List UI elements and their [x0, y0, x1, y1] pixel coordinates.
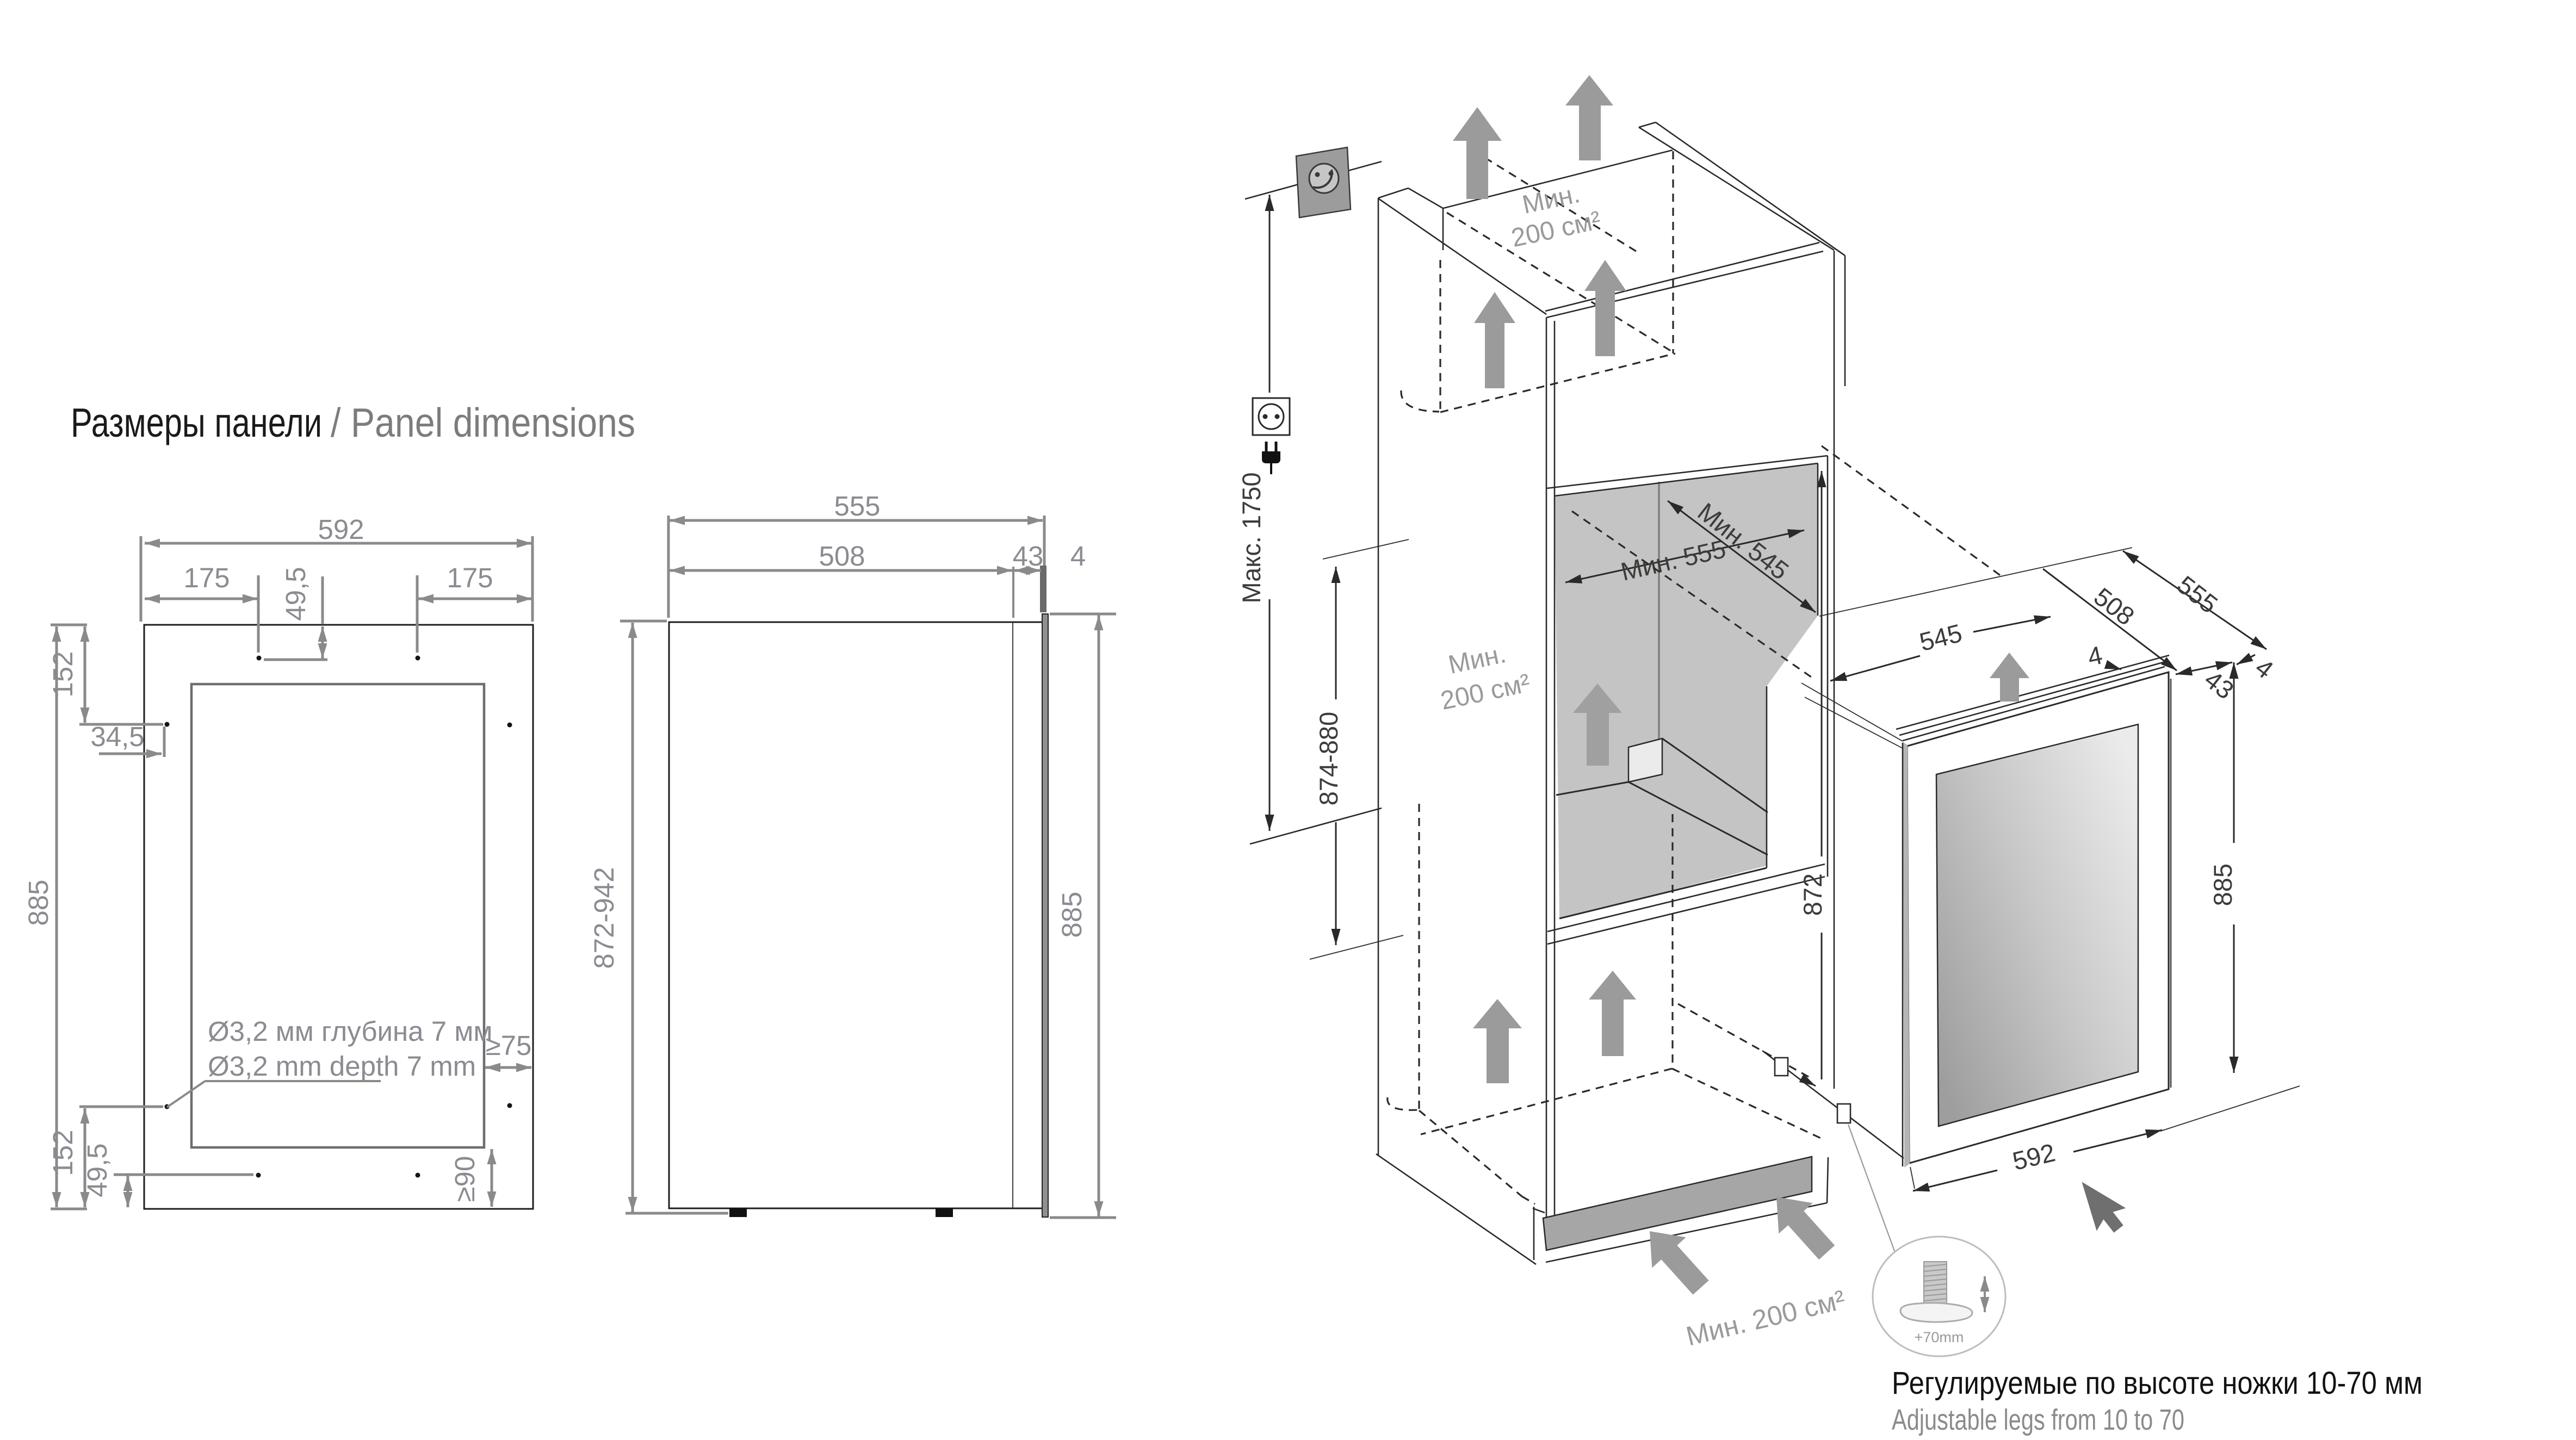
svg-text:175: 175 — [183, 562, 230, 593]
svg-text:Ø3,2 mm depth 7 mm: Ø3,2 mm depth 7 mm — [208, 1051, 476, 1082]
svg-text:592: 592 — [2010, 1138, 2058, 1176]
svg-text:545: 545 — [1917, 618, 1965, 656]
svg-text:152: 152 — [47, 1129, 78, 1176]
svg-text:4: 4 — [1070, 541, 1086, 572]
svg-text:≥90: ≥90 — [449, 1156, 480, 1202]
svg-text:Adjustable legs from 10 to 70: Adjustable legs from 10 to 70 — [1892, 1404, 2184, 1436]
svg-text:Регулируемые по высоте ножки 1: Регулируемые по высоте ножки 10-70 мм — [1892, 1365, 2423, 1401]
svg-text:152: 152 — [47, 651, 78, 697]
svg-text:4: 4 — [2085, 640, 2105, 671]
svg-text:Макс. 1750: Макс. 1750 — [1237, 472, 1266, 603]
svg-text:49,5: 49,5 — [82, 1143, 113, 1197]
svg-text:43: 43 — [1013, 541, 1044, 572]
svg-text:Мин.: Мин. — [1446, 640, 1508, 680]
svg-text:872: 872 — [1798, 873, 1827, 916]
svg-text:4: 4 — [2250, 653, 2279, 684]
svg-text:555: 555 — [834, 491, 880, 522]
svg-text:Размеры панели: Размеры панели — [71, 400, 322, 445]
svg-text:175: 175 — [447, 562, 493, 593]
svg-text:555: 555 — [2172, 570, 2223, 619]
svg-text:885: 885 — [2208, 864, 2237, 906]
svg-text:872-942: 872-942 — [589, 867, 620, 969]
svg-text:Мин. 200 см²: Мин. 200 см² — [1683, 1284, 1848, 1351]
svg-text:874-880: 874-880 — [1314, 712, 1343, 806]
svg-text:/ Panel dimensions: / Panel dimensions — [331, 400, 635, 445]
svg-text:Ø3,2 мм глубина 7 мм: Ø3,2 мм глубина 7 мм — [208, 1016, 492, 1047]
svg-text:885: 885 — [1056, 891, 1087, 938]
svg-text:508: 508 — [2089, 582, 2140, 631]
svg-text:592: 592 — [318, 514, 364, 545]
svg-text:34,5: 34,5 — [90, 721, 144, 752]
svg-text:+70mm: +70mm — [1915, 1329, 1964, 1345]
svg-text:885: 885 — [23, 879, 54, 926]
svg-text:49,5: 49,5 — [280, 567, 311, 620]
svg-text:508: 508 — [819, 541, 865, 572]
